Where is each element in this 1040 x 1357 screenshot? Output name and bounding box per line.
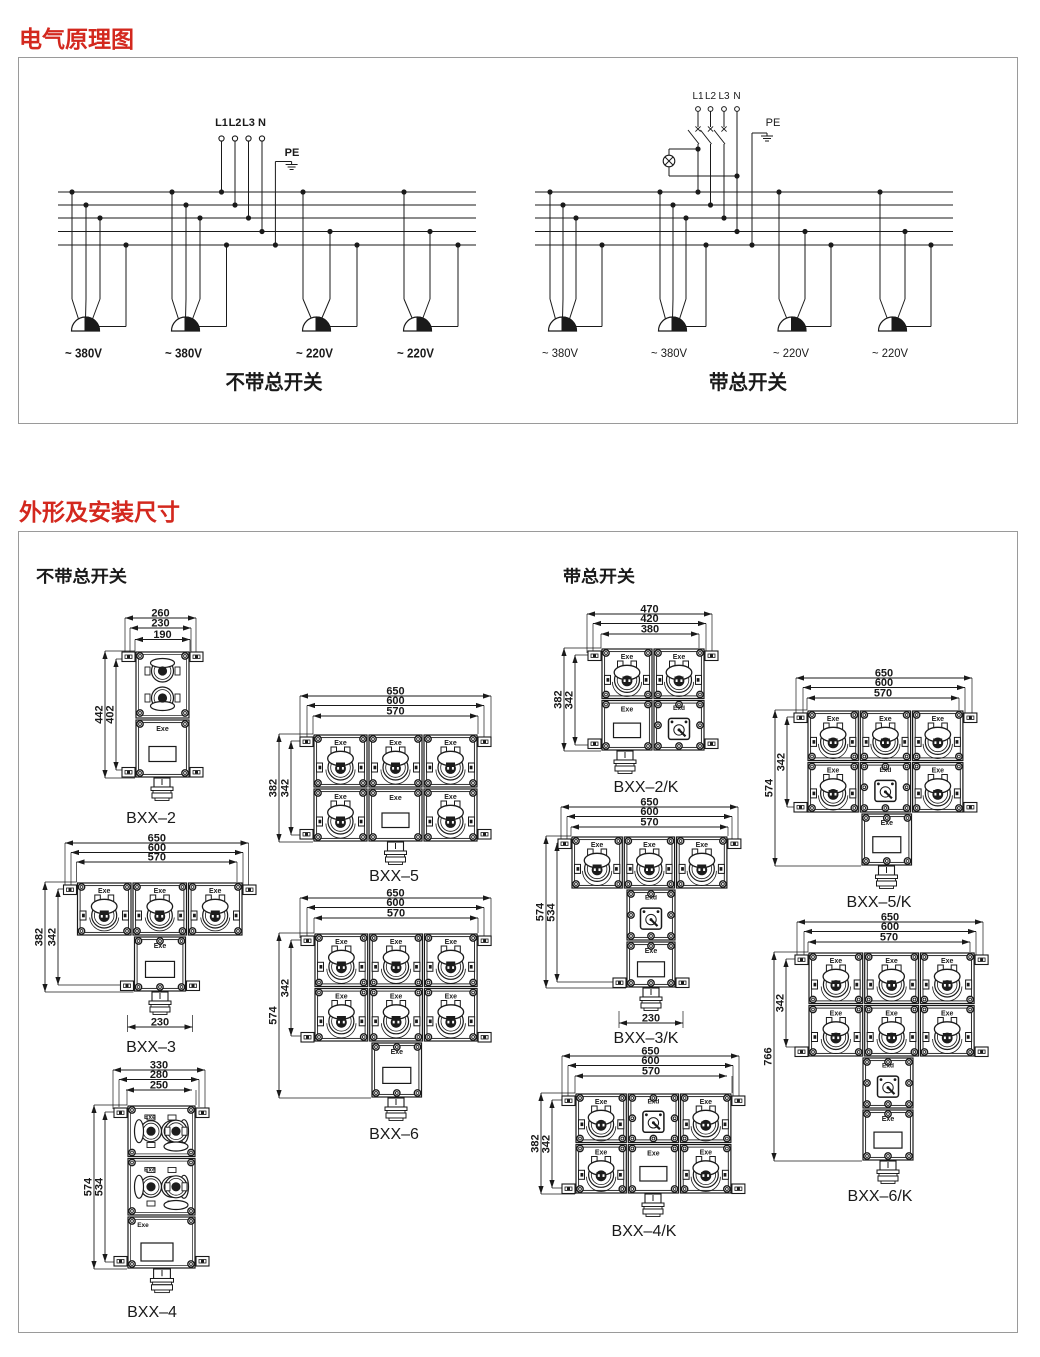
- svg-text:Exe: Exe: [444, 794, 457, 801]
- svg-text:250: 250: [150, 1080, 168, 1092]
- svg-text:不带总开关: 不带总开关: [36, 566, 128, 586]
- svg-text:570: 570: [148, 852, 166, 864]
- svg-text:Exe: Exe: [882, 1116, 895, 1123]
- svg-text:Exe: Exe: [700, 1150, 713, 1157]
- svg-text:L3: L3: [718, 91, 730, 102]
- svg-text:Exe: Exe: [885, 1011, 898, 1018]
- svg-text:342: 342: [47, 928, 59, 946]
- svg-text:Exe: Exe: [881, 820, 894, 827]
- svg-text:~ 220V: ~ 220V: [397, 347, 435, 361]
- svg-text:Exe: Exe: [941, 1011, 954, 1018]
- svg-text:534: 534: [546, 902, 558, 921]
- svg-text:766: 766: [763, 1047, 775, 1065]
- svg-text:BXX–2: BXX–2: [126, 810, 176, 827]
- svg-text:574: 574: [268, 1005, 280, 1024]
- svg-text:~ 380V: ~ 380V: [165, 347, 203, 361]
- svg-text:Exe: Exe: [647, 1151, 660, 1158]
- svg-text:570: 570: [874, 688, 892, 700]
- svg-text:382: 382: [34, 928, 46, 946]
- svg-text:带总开关: 带总开关: [709, 370, 787, 394]
- svg-text:574: 574: [764, 778, 776, 797]
- svg-text:190: 190: [153, 629, 171, 641]
- svg-text:Exe: Exe: [621, 654, 634, 661]
- svg-text:BXX–4/K: BXX–4/K: [612, 1223, 677, 1240]
- svg-text:570: 570: [642, 1066, 660, 1078]
- svg-text:342: 342: [776, 753, 788, 771]
- svg-text:L2: L2: [229, 117, 242, 129]
- svg-text:Exe: Exe: [879, 716, 892, 723]
- svg-text:Exe: Exe: [827, 716, 840, 723]
- svg-text:342: 342: [564, 691, 576, 709]
- svg-text:Exe: Exe: [444, 740, 457, 747]
- svg-text:~ 220V: ~ 220V: [773, 348, 809, 360]
- svg-text:BXX–6: BXX–6: [369, 1126, 419, 1143]
- svg-text:~ 380V: ~ 380V: [65, 347, 103, 361]
- svg-text:Exe: Exe: [591, 842, 604, 849]
- svg-text:Exe: Exe: [334, 740, 347, 747]
- svg-text:570: 570: [386, 706, 404, 718]
- svg-text:Exe: Exe: [830, 958, 843, 965]
- svg-text:PE: PE: [285, 147, 300, 159]
- svg-text:Exe: Exe: [137, 1222, 149, 1229]
- svg-text:N: N: [733, 91, 740, 102]
- svg-text:Exe: Exe: [595, 1099, 608, 1106]
- svg-text:BXX–2/K: BXX–2/K: [614, 779, 679, 796]
- svg-text:L2: L2: [705, 91, 717, 102]
- svg-text:570: 570: [880, 932, 898, 944]
- svg-text:382: 382: [268, 779, 280, 797]
- svg-text:Exe: Exe: [830, 1011, 843, 1018]
- svg-text:Exe: Exe: [932, 768, 945, 775]
- svg-text:230: 230: [642, 1013, 660, 1025]
- svg-text:Exe: Exe: [334, 794, 347, 801]
- svg-text:L3: L3: [242, 117, 255, 129]
- svg-text:Exe: Exe: [445, 939, 458, 946]
- svg-text:Exe: Exe: [391, 1049, 404, 1056]
- svg-text:342: 342: [775, 994, 787, 1012]
- svg-text:带总开关: 带总开关: [563, 566, 636, 586]
- svg-text:342: 342: [280, 779, 292, 797]
- svg-text:Exe: Exe: [154, 888, 167, 895]
- svg-text:~ 220V: ~ 220V: [296, 347, 334, 361]
- svg-text:BXX–5: BXX–5: [369, 868, 419, 885]
- svg-text:BXX–3: BXX–3: [126, 1039, 176, 1056]
- svg-text:BXX–5/K: BXX–5/K: [847, 894, 912, 911]
- svg-text:Exe: Exe: [335, 994, 348, 1001]
- svg-text:~ 220V: ~ 220V: [872, 348, 908, 360]
- svg-text:570: 570: [640, 817, 658, 829]
- svg-text:Exe: Exe: [209, 888, 222, 895]
- svg-text:~ 380V: ~ 380V: [542, 348, 578, 360]
- svg-text:Exe: Exe: [885, 958, 898, 965]
- svg-text:Exd: Exd: [879, 767, 891, 774]
- svg-text:Exe: Exe: [390, 939, 403, 946]
- svg-text:534: 534: [94, 1177, 106, 1196]
- svg-text:342: 342: [541, 1135, 553, 1153]
- svg-text:342: 342: [280, 979, 292, 997]
- svg-text:Exe: Exe: [595, 1150, 608, 1157]
- svg-text:Exd: Exd: [882, 1063, 894, 1070]
- svg-text:不带总开关: 不带总开关: [226, 370, 323, 394]
- svg-text:Exe: Exe: [645, 948, 658, 955]
- svg-text:Exd: Exd: [673, 705, 685, 712]
- svg-text:Exe: Exe: [156, 726, 169, 733]
- svg-text:Exe: Exe: [696, 842, 709, 849]
- svg-text:Exe: Exe: [827, 768, 840, 775]
- svg-text:BXX–4: BXX–4: [127, 1304, 177, 1321]
- svg-text:Exe: Exe: [700, 1099, 713, 1106]
- svg-text:Exe: Exe: [335, 939, 348, 946]
- svg-text:230: 230: [151, 618, 169, 630]
- svg-text:Exe: Exe: [390, 994, 403, 1001]
- svg-text:Exe: Exe: [154, 943, 167, 950]
- svg-text:Exe: Exe: [643, 842, 656, 849]
- svg-text:Exe: Exe: [389, 795, 402, 802]
- svg-text:BXX–3/K: BXX–3/K: [614, 1030, 679, 1047]
- svg-text:Exe: Exe: [673, 654, 686, 661]
- svg-text:~ 380V: ~ 380V: [651, 348, 687, 360]
- svg-text:PE: PE: [766, 117, 781, 129]
- svg-text:Exe: Exe: [941, 958, 954, 965]
- svg-text:L1: L1: [215, 117, 228, 129]
- svg-text:L1: L1: [692, 91, 704, 102]
- svg-text:380: 380: [641, 624, 659, 636]
- svg-text:570: 570: [387, 908, 405, 920]
- svg-text:Exe: Exe: [445, 994, 458, 1001]
- svg-text:Exe: Exe: [144, 1167, 156, 1174]
- svg-text:Exe: Exe: [621, 707, 634, 714]
- svg-text:Exd: Exd: [647, 1099, 659, 1106]
- svg-text:Exe: Exe: [144, 1114, 156, 1121]
- svg-text:Exd: Exd: [645, 895, 657, 902]
- svg-text:402: 402: [105, 705, 117, 723]
- svg-text:230: 230: [151, 1017, 169, 1029]
- svg-text:Exe: Exe: [389, 740, 402, 747]
- svg-text:BXX–6/K: BXX–6/K: [848, 1188, 913, 1205]
- svg-text:Exe: Exe: [932, 716, 945, 723]
- svg-text:N: N: [258, 117, 266, 129]
- svg-text:Exe: Exe: [98, 888, 111, 895]
